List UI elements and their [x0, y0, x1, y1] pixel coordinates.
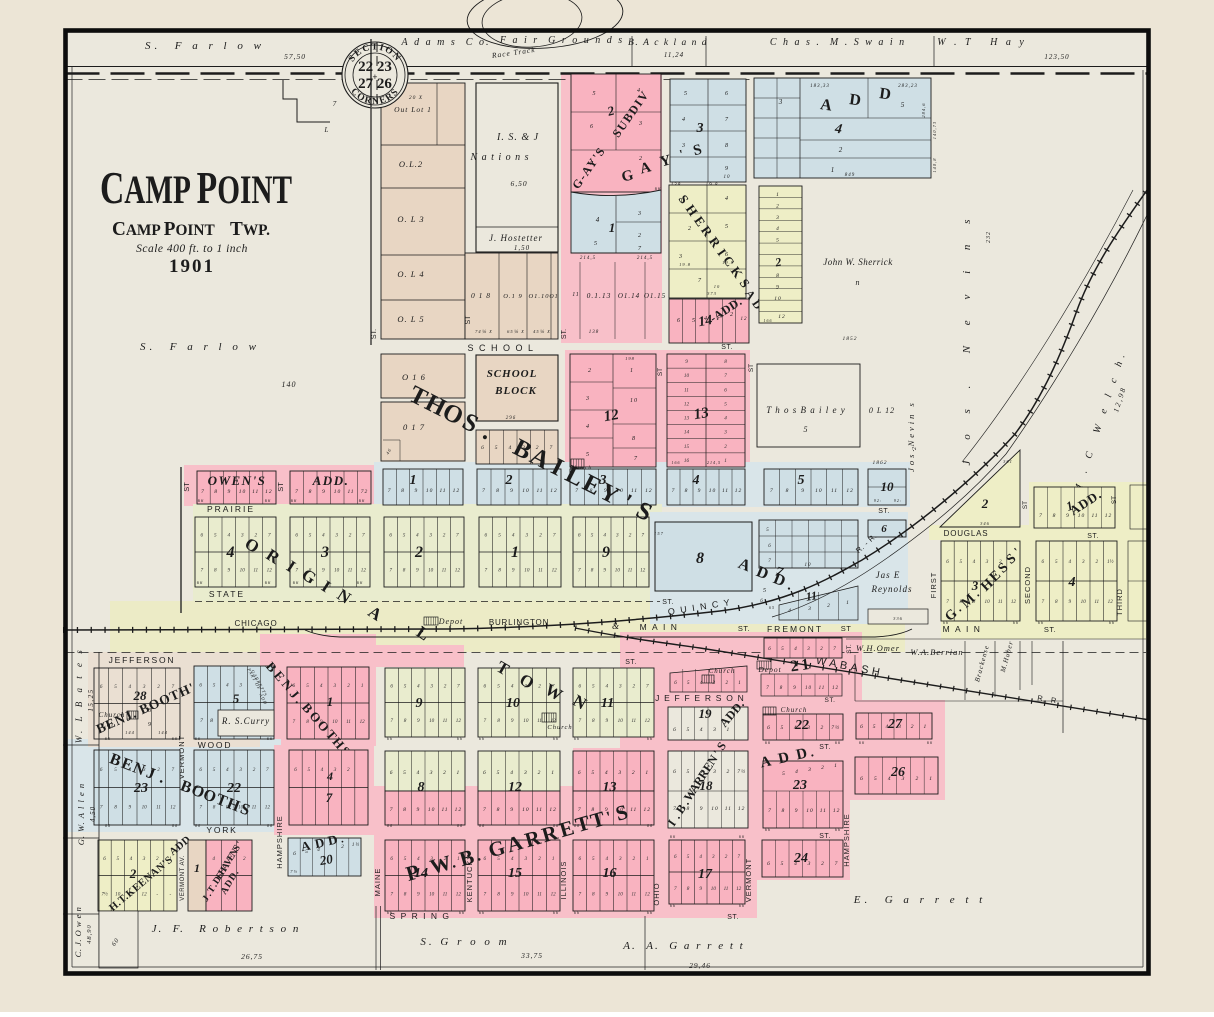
svg-text:2: 2 [688, 226, 692, 232]
svg-text:3: 3 [619, 856, 622, 862]
svg-text:D: D [848, 91, 865, 110]
svg-text:7: 7 [698, 278, 702, 284]
svg-text:10: 10 [615, 568, 621, 574]
svg-text:5: 5 [781, 647, 785, 652]
svg-text:7: 7 [295, 568, 298, 574]
svg-text:7: 7 [293, 719, 296, 725]
svg-text:66: 66 [198, 498, 205, 503]
svg-text:9: 9 [510, 488, 514, 494]
svg-text:2: 2 [156, 856, 159, 862]
svg-text:17: 17 [698, 867, 713, 882]
svg-text:CAMP POINT: CAMP POINT [100, 162, 292, 213]
svg-text:8: 8 [591, 568, 594, 574]
svg-text:66: 66 [479, 823, 485, 828]
svg-text:2: 2 [505, 473, 513, 488]
svg-text:9: 9 [699, 886, 702, 892]
svg-text:HAMPSHIRE: HAMPSHIRE [275, 815, 284, 869]
svg-text:5: 5 [780, 725, 784, 731]
svg-text:3: 3 [1082, 559, 1085, 565]
svg-text:4: 4 [724, 415, 727, 422]
svg-text:19: 19 [699, 706, 713, 721]
svg-text:66: 66 [195, 736, 201, 741]
svg-text:6: 6 [673, 769, 677, 775]
svg-text:5: 5 [804, 425, 809, 434]
svg-text:O. L 3: O. L 3 [397, 214, 424, 224]
svg-text:10: 10 [711, 886, 717, 892]
svg-text:66: 66 [647, 736, 653, 741]
svg-text:5: 5 [404, 856, 407, 862]
svg-text:381: 381 [1003, 459, 1013, 464]
svg-text:4: 4 [725, 195, 729, 202]
svg-text:1: 1 [646, 856, 649, 862]
svg-text:A: A [819, 96, 836, 115]
svg-text:9: 9 [416, 568, 419, 574]
svg-text:12: 12 [552, 568, 558, 574]
svg-text:ADD.: ADD. [312, 473, 350, 488]
svg-text:66: 66 [457, 736, 463, 741]
svg-text:3: 3 [616, 533, 619, 539]
svg-text:12: 12 [846, 488, 854, 494]
svg-text:5: 5 [214, 533, 217, 539]
svg-text:5: 5 [901, 101, 906, 109]
svg-text:KENTUCKY: KENTUCKY [465, 854, 474, 903]
svg-text:8: 8 [780, 686, 784, 691]
svg-text:7: 7 [770, 488, 774, 494]
svg-text:ST.: ST. [625, 659, 637, 666]
svg-text:12: 12 [833, 808, 841, 814]
svg-text:2: 2 [243, 856, 246, 862]
svg-text:66: 66 [739, 903, 745, 908]
svg-text:66: 66 [359, 498, 366, 503]
svg-text:6: 6 [485, 533, 488, 539]
svg-text:21: 21 [789, 656, 813, 676]
svg-text:7: 7 [724, 373, 727, 379]
svg-text:74⅚ X: 74⅚ X [475, 329, 493, 334]
svg-text:n: n [856, 278, 861, 287]
svg-text:1½: 1½ [352, 843, 360, 848]
svg-text:11: 11 [347, 489, 354, 495]
svg-text:66: 66 [835, 827, 841, 832]
svg-text:FIRST: FIRST [929, 572, 938, 599]
svg-text:O. L 4: O. L 4 [397, 269, 424, 279]
svg-text:9: 9 [602, 544, 610, 561]
svg-text:6: 6 [674, 681, 678, 686]
svg-text:N a t i o n s: N a t i o n s [469, 152, 529, 163]
svg-text:92:: 92: [894, 498, 902, 503]
svg-text:9: 9 [416, 696, 423, 711]
svg-text:Jas E: Jas E [876, 570, 901, 580]
svg-text:3: 3 [712, 727, 717, 733]
svg-text:13: 13 [684, 416, 690, 422]
svg-text:11: 11 [998, 599, 1003, 605]
svg-text:66: 66 [479, 736, 485, 741]
svg-text:66: 66 [172, 736, 178, 741]
svg-text:9: 9 [417, 891, 420, 897]
svg-text:8: 8 [724, 359, 727, 365]
svg-text:12: 12 [645, 891, 651, 897]
svg-text:Out Lot 1: Out Lot 1 [394, 105, 432, 114]
svg-text:4: 4 [682, 116, 686, 123]
svg-text:66: 66 [265, 498, 272, 503]
svg-text:12: 12 [1011, 599, 1017, 605]
svg-text:20 X: 20 X [409, 95, 423, 101]
svg-text:6: 6 [100, 684, 103, 690]
svg-text:66: 66 [835, 740, 841, 745]
svg-text:10: 10 [429, 891, 435, 897]
svg-text:Scale 400 ft. to 1 inch: Scale 400 ft. to 1 inch [136, 243, 248, 255]
svg-text:10: 10 [714, 284, 721, 289]
svg-text:3: 3 [724, 430, 727, 436]
svg-text:232: 232 [986, 231, 992, 243]
svg-text:ST.: ST. [1044, 625, 1056, 634]
svg-text:66: 66 [553, 823, 559, 828]
svg-text:ST: ST [1111, 496, 1118, 504]
svg-text:2: 2 [538, 683, 541, 689]
svg-text:7: 7 [484, 891, 487, 897]
svg-text:157: 157 [654, 531, 664, 536]
svg-text:4: 4 [605, 769, 609, 776]
svg-text:4: 4 [416, 769, 420, 776]
svg-text:2: 2 [725, 854, 728, 860]
svg-text:8: 8 [632, 436, 636, 442]
svg-text:3: 3 [429, 770, 434, 776]
svg-text:12: 12 [170, 804, 176, 810]
svg-text:J o s . N e v i n s: J o s . N e v i n s [961, 211, 973, 466]
svg-text:7: 7 [578, 568, 581, 574]
svg-text:11: 11 [537, 718, 542, 724]
svg-text:140: 140 [282, 380, 297, 389]
svg-text:2: 2 [443, 770, 447, 776]
svg-text:12: 12 [684, 401, 690, 407]
svg-text:11: 11 [630, 807, 637, 813]
svg-text:66: 66 [574, 910, 580, 915]
svg-text:4: 4 [227, 532, 230, 539]
svg-text:F a i r G r o u n d s: F a i r G r o u n d s [499, 35, 624, 46]
svg-text:5: 5 [497, 770, 501, 776]
svg-text:8: 8 [404, 718, 407, 724]
svg-text:5: 5 [724, 401, 727, 407]
svg-text:7½: 7½ [101, 890, 108, 897]
svg-text:YORK: YORK [206, 825, 237, 835]
svg-text:7: 7 [100, 804, 103, 810]
svg-text:O. L 5: O. L 5 [397, 314, 424, 324]
svg-text:4: 4 [226, 544, 235, 561]
svg-text:10: 10 [618, 891, 624, 897]
svg-text:11: 11 [537, 891, 542, 897]
svg-text:45⅚ X: 45⅚ X [533, 329, 551, 334]
svg-text:2: 2 [349, 533, 352, 539]
svg-text:1901: 1901 [169, 256, 215, 277]
svg-text:12: 12 [640, 568, 646, 574]
svg-text:9: 9 [322, 568, 325, 574]
svg-text:1: 1 [846, 600, 850, 606]
svg-text:7: 7 [482, 488, 486, 494]
svg-text:1: 1 [630, 368, 634, 374]
svg-text:11: 11 [538, 568, 543, 574]
svg-text:O1.10: O1.10 [528, 293, 549, 300]
svg-text:7: 7 [578, 718, 581, 724]
svg-text:3: 3 [637, 211, 642, 217]
svg-text:11: 11 [442, 568, 447, 574]
svg-text:66: 66 [574, 823, 580, 828]
svg-text:144: 144 [125, 730, 135, 735]
svg-text:Depot: Depot [438, 617, 464, 626]
svg-text:2: 2 [538, 856, 541, 862]
svg-text:9: 9 [795, 808, 799, 814]
svg-text:7: 7 [553, 533, 556, 539]
svg-text:7: 7 [457, 683, 460, 689]
svg-text:9: 9 [227, 568, 230, 574]
svg-text:7: 7 [456, 533, 459, 539]
svg-text:7: 7 [199, 804, 202, 810]
svg-text:9: 9 [510, 807, 514, 813]
svg-text:5: 5 [116, 856, 119, 862]
svg-text:24: 24 [793, 851, 808, 866]
svg-text:ST: ST [465, 315, 472, 325]
svg-text:4: 4 [322, 532, 325, 539]
svg-text:6: 6 [578, 770, 582, 776]
svg-text:2: 2 [638, 233, 642, 239]
svg-text:5: 5 [591, 770, 595, 776]
svg-text:Depot: Depot [757, 665, 781, 674]
svg-text:4: 4 [326, 769, 333, 783]
svg-text:12: 12 [141, 891, 147, 897]
svg-text:6: 6 [768, 544, 772, 549]
svg-text:9: 9 [725, 166, 729, 172]
svg-text:5: 5 [686, 769, 690, 775]
svg-text:6: 6 [860, 776, 864, 782]
svg-text:296: 296 [506, 416, 517, 421]
svg-text:10: 10 [523, 718, 529, 724]
svg-text:6: 6 [483, 770, 487, 776]
svg-text:10: 10 [334, 489, 342, 495]
svg-text:SECOND: SECOND [1023, 566, 1032, 604]
svg-text:THIRD: THIRD [1115, 588, 1124, 616]
svg-text:1: 1 [776, 192, 780, 198]
svg-text:4: 4 [692, 473, 700, 488]
svg-text:2: 2 [538, 770, 542, 776]
svg-text:12: 12 [361, 568, 367, 574]
svg-text:-: - [170, 891, 172, 897]
svg-text:15,25: 15,25 [87, 688, 95, 711]
svg-text:8: 8 [497, 891, 500, 897]
svg-text:66: 66 [574, 736, 580, 741]
svg-text:ST.: ST. [727, 914, 739, 921]
svg-text:11: 11 [536, 488, 543, 494]
svg-text:10: 10 [1081, 599, 1087, 605]
svg-text:5: 5 [687, 681, 691, 686]
svg-text:1: 1 [609, 220, 616, 235]
svg-text:5: 5 [593, 91, 596, 97]
svg-text:4: 4 [776, 225, 780, 232]
svg-text:WOOD: WOOD [198, 740, 233, 750]
svg-text:6: 6 [295, 533, 298, 539]
svg-text:SCHOOL: SCHOOL [487, 368, 538, 380]
svg-text:B. A c k l a n d: B. A c k l a n d [628, 38, 708, 48]
svg-text:6: 6 [590, 124, 594, 130]
svg-text:2: 2 [539, 533, 542, 539]
svg-text:S. F a r l o w: S. F a r l o w [145, 40, 265, 52]
svg-text:6: 6 [725, 91, 729, 97]
svg-text:7: 7 [1039, 513, 1043, 519]
svg-text:9: 9 [414, 488, 418, 494]
svg-text:12: 12 [551, 891, 557, 897]
svg-text:66: 66 [553, 736, 559, 741]
svg-text:4: 4 [226, 766, 229, 773]
svg-text:8: 8 [497, 807, 501, 813]
svg-text:5: 5 [233, 691, 240, 706]
svg-text:5: 5 [1055, 559, 1058, 565]
svg-text:5: 5 [498, 533, 501, 539]
svg-text:9: 9 [416, 807, 420, 813]
svg-text:1: 1 [834, 763, 838, 769]
svg-text:6: 6 [674, 854, 677, 860]
svg-text:8: 8 [403, 568, 406, 574]
svg-text:10: 10 [428, 807, 436, 813]
svg-text:8: 8 [210, 718, 214, 724]
svg-text:8: 8 [401, 488, 405, 494]
svg-text:11: 11 [819, 686, 826, 691]
svg-text:144: 144 [158, 730, 168, 735]
svg-text:5: 5 [495, 445, 499, 451]
svg-text:33,75: 33,75 [520, 951, 543, 960]
svg-text:8: 8 [696, 550, 704, 567]
svg-text:9: 9 [605, 891, 608, 897]
svg-text:15: 15 [684, 444, 690, 450]
svg-text:7: 7 [946, 599, 949, 605]
svg-text:5: 5 [874, 776, 878, 782]
svg-text:7: 7 [266, 767, 269, 773]
svg-text:166: 166 [672, 460, 681, 465]
svg-text:4: 4 [1068, 558, 1071, 565]
svg-text:7: 7 [641, 533, 644, 539]
svg-text:8: 8 [685, 488, 689, 494]
svg-text:3: 3 [523, 770, 528, 776]
svg-text:4: 4 [795, 768, 799, 775]
svg-text:VERMONT AV.: VERMONT AV. [180, 855, 186, 900]
svg-text:9: 9 [148, 722, 152, 728]
svg-text:4: 4 [596, 216, 601, 224]
svg-text:1: 1 [724, 458, 727, 464]
svg-text:66: 66 [387, 736, 393, 741]
svg-text:10: 10 [332, 719, 338, 725]
svg-text:2: 2 [821, 765, 825, 771]
svg-text:3: 3 [778, 98, 784, 106]
svg-text:1: 1 [645, 770, 649, 776]
svg-text:11: 11 [684, 387, 689, 393]
svg-text:66: 66 [457, 823, 463, 828]
svg-text:11: 11 [722, 488, 729, 494]
svg-text:0 1 7: 0 1 7 [403, 422, 425, 432]
svg-text:5: 5 [684, 91, 688, 97]
svg-text:10: 10 [724, 175, 731, 180]
svg-text:6: 6 [100, 767, 103, 773]
svg-text:3: 3 [430, 683, 433, 689]
svg-text:ST.: ST. [825, 697, 836, 704]
svg-text:W . T H a y: W . T H a y [937, 37, 1027, 48]
svg-text:ST.: ST. [846, 644, 853, 654]
svg-text:3: 3 [807, 606, 812, 612]
svg-text:22: 22 [794, 718, 809, 733]
svg-text:10: 10 [630, 398, 638, 404]
svg-text:2: 2 [1095, 559, 1098, 565]
svg-text:10: 10 [711, 806, 719, 812]
svg-text:W.A.Berrian: W.A.Berrian [910, 647, 963, 657]
svg-text:11: 11 [601, 696, 614, 711]
svg-text:9: 9 [776, 284, 780, 290]
svg-text:BURLINGTON: BURLINGTON [489, 618, 549, 627]
svg-text:ST.: ST. [561, 329, 568, 339]
svg-text:12: 12 [1108, 599, 1114, 605]
svg-text:16: 16 [603, 866, 617, 881]
svg-text:6: 6 [724, 387, 727, 393]
svg-text:10: 10 [815, 488, 823, 494]
svg-text:14: 14 [684, 429, 690, 436]
svg-text:R. S.Curry: R. S.Curry [221, 716, 270, 726]
svg-text:2: 2 [915, 776, 919, 782]
svg-text:66: 66 [291, 498, 298, 503]
svg-text:6: 6 [103, 856, 106, 862]
svg-text:6: 6 [578, 683, 581, 689]
svg-text:9: 9 [700, 806, 704, 812]
svg-text:66: 66 [387, 823, 393, 828]
svg-text:5: 5 [686, 727, 690, 733]
svg-text:7: 7 [483, 807, 487, 813]
svg-text:66: 66 [195, 823, 201, 828]
svg-text:6: 6 [860, 724, 864, 730]
svg-text:66: 66 [765, 740, 771, 745]
svg-text:9: 9 [322, 489, 326, 495]
svg-text:C h a s . M . S w a i n: C h a s . M . S w a i n [770, 37, 906, 48]
svg-text:66: 66 [943, 620, 949, 625]
svg-text:849: 849 [845, 173, 856, 178]
svg-text:12: 12 [644, 807, 652, 813]
svg-text:1: 1 [551, 770, 555, 776]
svg-text:6: 6 [578, 533, 581, 539]
svg-text:12: 12 [736, 886, 742, 892]
svg-text:5: 5 [687, 854, 690, 860]
svg-text:1: 1 [327, 694, 334, 709]
svg-text:12: 12 [645, 488, 653, 494]
svg-text:8: 8 [1053, 513, 1057, 519]
svg-text:A d a m s C o.: A d a m s C o. [401, 37, 491, 48]
svg-text:11: 11 [441, 807, 448, 813]
svg-text:I. S. & J: I. S. & J [496, 132, 539, 143]
svg-text:7½: 7½ [831, 724, 840, 731]
svg-text:3: 3 [638, 121, 643, 127]
svg-text:JEFFERSON: JEFFERSON [109, 655, 176, 665]
svg-text:7: 7 [389, 568, 392, 574]
svg-text:10: 10 [618, 718, 624, 724]
svg-text:5: 5 [763, 588, 767, 594]
svg-text:1: 1 [194, 861, 200, 875]
svg-text:11: 11 [252, 489, 259, 495]
svg-text:7: 7 [674, 886, 677, 892]
svg-text:8: 8 [592, 891, 595, 897]
svg-text:346: 346 [980, 521, 990, 526]
svg-text:5: 5 [782, 771, 786, 777]
svg-text:J. Hostetter: J. Hostetter [489, 233, 543, 243]
svg-text:12: 12 [832, 686, 839, 691]
svg-text:11: 11 [831, 488, 838, 494]
svg-text:2: 2 [414, 544, 423, 561]
svg-text:66: 66 [267, 823, 273, 828]
svg-text:10: 10 [506, 696, 520, 711]
svg-text:4: 4 [212, 855, 215, 862]
svg-text:9: 9 [1068, 599, 1071, 605]
svg-text:11: 11 [628, 568, 633, 574]
svg-text:11: 11 [631, 718, 636, 724]
